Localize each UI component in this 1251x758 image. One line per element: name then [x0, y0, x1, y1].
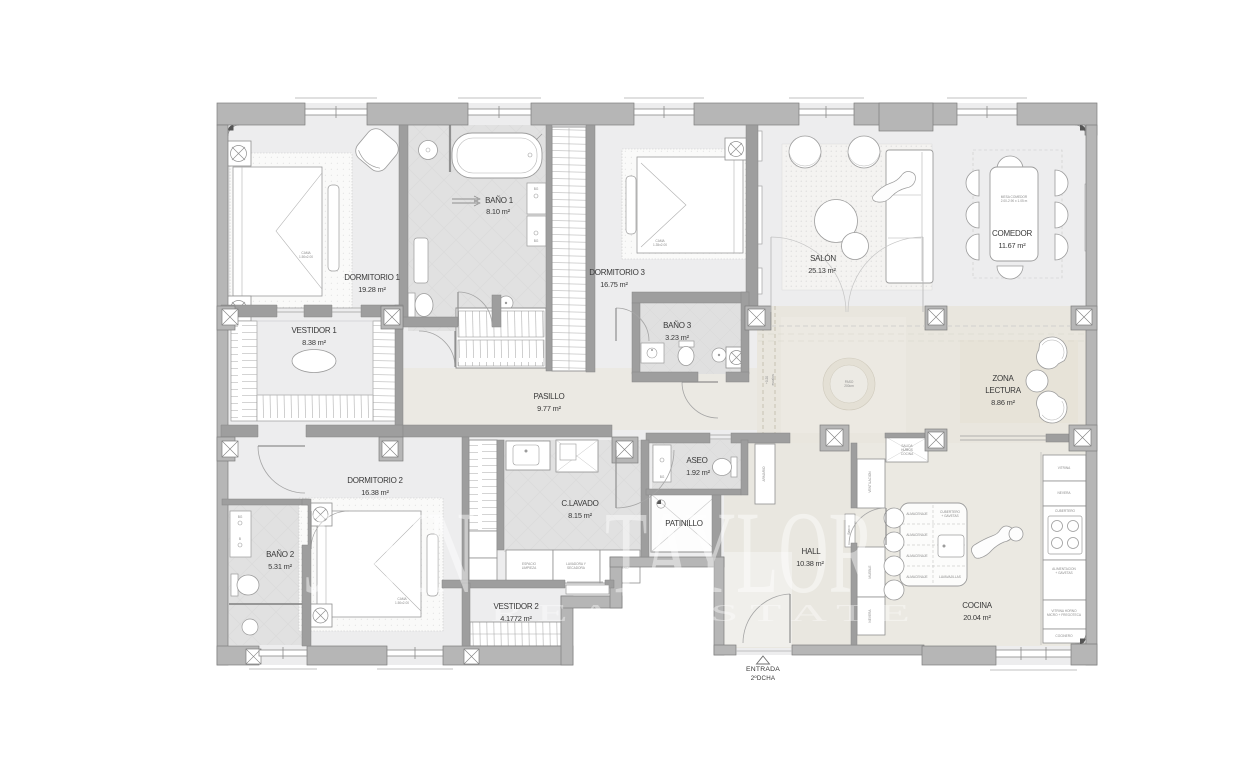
svg-text:BG: BG [660, 475, 665, 479]
svg-text:ARMARIO: ARMARIO [762, 466, 766, 481]
svg-text:8.86 m²: 8.86 m² [991, 398, 1015, 407]
svg-text:MICRO + FREGOTECA: MICRO + FREGOTECA [1047, 613, 1082, 617]
svg-text:16.38 m²: 16.38 m² [361, 488, 389, 497]
svg-text:200cm: 200cm [844, 384, 854, 388]
svg-text:2.00-2.90 x 1.05 m: 2.00-2.90 x 1.05 m [1001, 199, 1028, 203]
svg-text:20.04 m²: 20.04 m² [963, 613, 991, 622]
svg-text:8.10 m²: 8.10 m² [486, 207, 510, 216]
svg-text:19.28 m²: 19.28 m² [358, 285, 386, 294]
svg-text:1.92 m²: 1.92 m² [686, 468, 710, 477]
svg-text:+ GAVETAS: + GAVETAS [941, 514, 958, 518]
svg-text:LECTURA: LECTURA [985, 386, 1022, 395]
svg-text:2ºDCHA: 2ºDCHA [751, 675, 776, 682]
svg-text:BG: BG [534, 239, 539, 243]
svg-text:16.75 m²: 16.75 m² [600, 280, 628, 289]
svg-text:DORMITORIO 1: DORMITORIO 1 [344, 273, 400, 282]
svg-text:COMEDOR: COMEDOR [992, 229, 1033, 238]
svg-text:COCINA: COCINA [901, 452, 914, 456]
svg-text:3.23 m²: 3.23 m² [665, 333, 689, 342]
svg-text:1.50x2.00: 1.50x2.00 [299, 255, 313, 259]
svg-text:+ GAVETAS: + GAVETAS [1055, 571, 1072, 575]
svg-text:+0.20: +0.20 [765, 376, 769, 384]
svg-text:COCINERO: COCINERO [1055, 634, 1073, 638]
svg-text:ALMACENAJE: ALMACENAJE [906, 554, 927, 558]
svg-text:NEVERA: NEVERA [1057, 491, 1071, 495]
svg-text:BAÑO 3: BAÑO 3 [663, 321, 692, 330]
svg-text:VESTIDOR 1: VESTIDOR 1 [291, 326, 337, 335]
svg-text:R E A L E S T A T E: R E A L E S T A T E [490, 601, 910, 627]
svg-text:LIMPIEZA: LIMPIEZA [522, 566, 537, 570]
svg-text:BG: BG [534, 187, 539, 191]
svg-text:ASEO: ASEO [686, 456, 707, 465]
svg-text:TAYLOR: TAYLOR [605, 487, 875, 618]
svg-text:BAÑO 1: BAÑO 1 [485, 196, 514, 205]
svg-text:ALMACENAJE: ALMACENAJE [906, 533, 927, 537]
svg-text:VESTIDOR 2: VESTIDOR 2 [493, 602, 539, 611]
svg-text:ZONA: ZONA [992, 374, 1014, 383]
svg-text:HALL: HALL [801, 547, 821, 556]
svg-text:DORMITORIO 2: DORMITORIO 2 [347, 476, 403, 485]
svg-text:9.77 m²: 9.77 m² [537, 404, 561, 413]
svg-text:B: B [239, 537, 241, 541]
svg-text:5.31 m²: 5.31 m² [268, 562, 292, 571]
svg-text:escalon: escalon [771, 374, 775, 385]
svg-text:VITRINA: VITRINA [1058, 466, 1071, 470]
svg-text:CUBERTERO: CUBERTERO [1055, 509, 1075, 513]
svg-text:DORMITORIO 3: DORMITORIO 3 [589, 268, 645, 277]
svg-text:25.13 m²: 25.13 m² [808, 266, 836, 275]
svg-text:COCINA: COCINA [962, 601, 993, 610]
svg-text:ALMACENAJE: ALMACENAJE [906, 575, 927, 579]
svg-text:ALMACENAJE: ALMACENAJE [906, 512, 927, 516]
svg-text:BG: BG [238, 515, 243, 519]
svg-text:ENTRADA: ENTRADA [746, 666, 780, 673]
svg-text:JOHN: JOHN [305, 487, 475, 618]
svg-text:8.15 m²: 8.15 m² [568, 511, 592, 520]
svg-text:10.38 m²: 10.38 m² [796, 559, 824, 568]
svg-text:LAVAVAJILLAS: LAVAVAJILLAS [939, 575, 961, 579]
svg-text:BAÑO 2: BAÑO 2 [266, 550, 295, 559]
svg-text:SALÓN: SALÓN [810, 254, 836, 263]
svg-text:C.LAVADO: C.LAVADO [561, 499, 598, 508]
svg-text:4.1772 m²: 4.1772 m² [500, 614, 532, 623]
svg-text:11.67 m²: 11.67 m² [998, 241, 1026, 250]
svg-text:1.35x2.00: 1.35x2.00 [653, 243, 667, 247]
svg-text:SECADORA: SECADORA [567, 566, 586, 570]
svg-text:PASILLO: PASILLO [533, 392, 564, 401]
svg-text:8.38 m²: 8.38 m² [302, 338, 326, 347]
svg-text:PATINILLO: PATINILLO [665, 519, 702, 528]
